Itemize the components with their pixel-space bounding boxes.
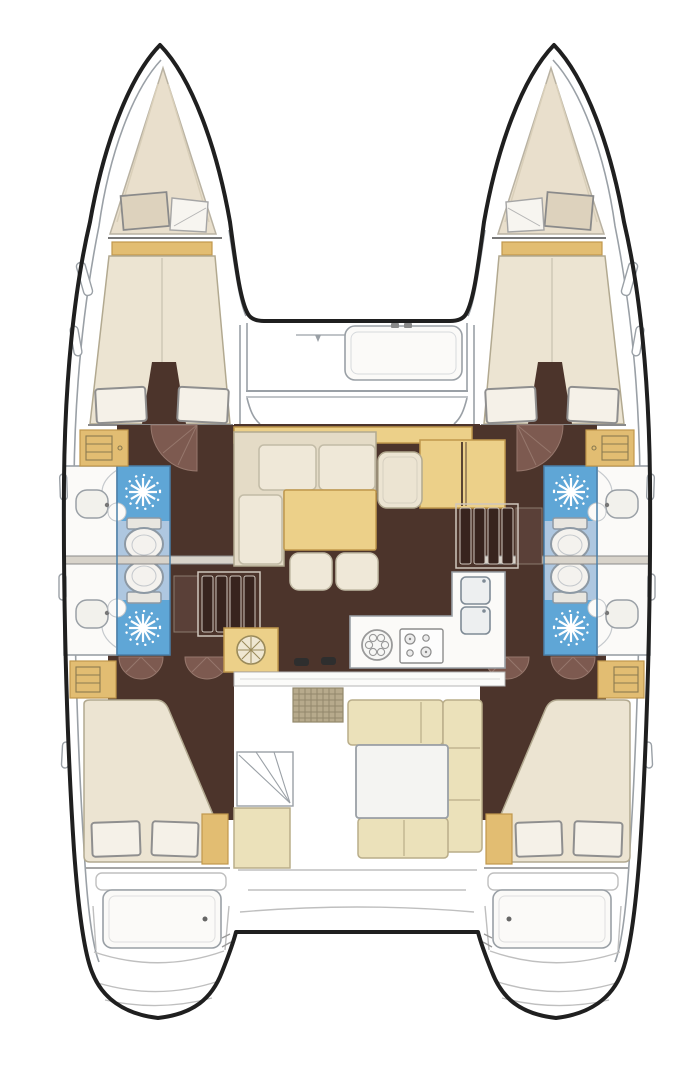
ottoman [290, 553, 332, 590]
companionway-steps-starboard [456, 504, 542, 568]
cockpit-bench [348, 700, 443, 745]
forward-cabin [88, 256, 233, 425]
hatch-hinge-icon [391, 323, 399, 328]
sofa-cushion [319, 445, 375, 490]
galley-round-sink-icon [362, 630, 392, 660]
cabinet-aft [70, 661, 116, 698]
pillow [91, 821, 140, 857]
door-handle-icon [294, 658, 309, 666]
hatch-hinge-icon [404, 323, 412, 328]
washbasin [76, 600, 108, 628]
cockpit-table [356, 745, 448, 818]
galley-stove-icon [400, 629, 443, 663]
forepeak-locker [121, 192, 170, 230]
catamaran-floorplan [0, 0, 686, 1080]
chart-seat [378, 452, 422, 508]
shelf-band [112, 242, 212, 255]
washbasin [76, 490, 108, 518]
cockpit-side-seat [234, 808, 290, 868]
ottoman [336, 553, 378, 590]
saloon-table [284, 490, 376, 550]
cockpit-stairs [237, 752, 293, 806]
sofa-cushion [239, 495, 282, 564]
pillow [151, 821, 198, 857]
foredeck-hatch [345, 326, 462, 380]
floorplan-page [0, 0, 686, 1080]
bathroom-divider-wall [64, 556, 234, 564]
cockpit-grating [293, 688, 343, 722]
pillow [95, 387, 147, 424]
pillow [177, 387, 229, 424]
sofa-cushion [259, 445, 316, 490]
cockpit-bench [358, 818, 448, 858]
mast-pedestal-cabinet [224, 628, 278, 672]
door-handle-icon [321, 657, 336, 665]
sliding-door [234, 672, 505, 686]
companionway-steps-port [174, 572, 260, 636]
aft-cabin-cabinet [202, 814, 228, 864]
chart-desk [420, 440, 505, 508]
faucet-icon [105, 503, 109, 507]
cabinet-forward [80, 430, 128, 466]
forepeak-shelf [170, 198, 208, 232]
